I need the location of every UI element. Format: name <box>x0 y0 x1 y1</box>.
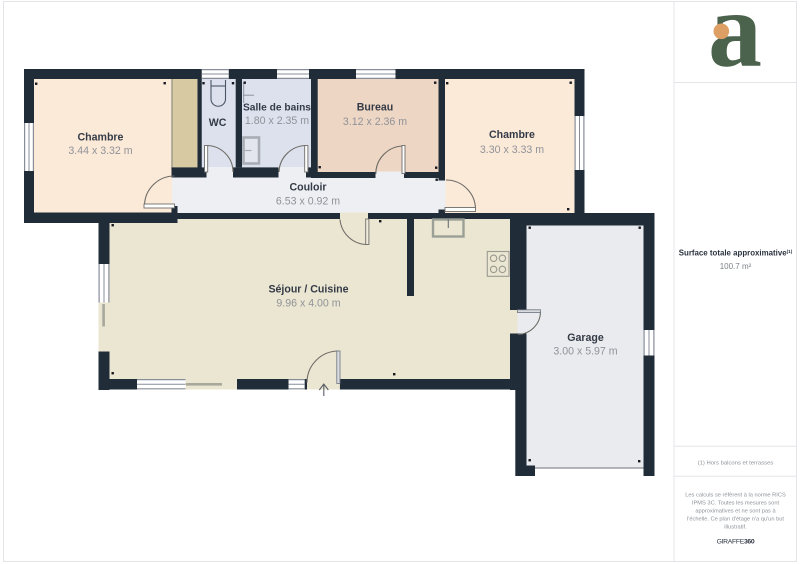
svg-text:9.96 x 4.00 m: 9.96 x 4.00 m <box>276 298 340 310</box>
svg-text:Couloir: Couloir <box>289 181 326 193</box>
svg-text:1.80 x 2.35 m: 1.80 x 2.35 m <box>245 115 309 127</box>
svg-text:100.7 m²: 100.7 m² <box>720 262 752 271</box>
svg-text:IPMS 3C. Toutes les mesures so: IPMS 3C. Toutes les mesures sont <box>692 501 780 507</box>
svg-text:Séjour / Cuisine: Séjour / Cuisine <box>268 283 348 295</box>
svg-text:l'échelle. Ce plan d'étage n'a: l'échelle. Ce plan d'étage n'a qu'un but <box>687 517 784 523</box>
svg-text:Surface totale approximative(1: Surface totale approximative(1) <box>679 249 793 258</box>
svg-text:3.00 x 5.97 m: 3.00 x 5.97 m <box>553 345 617 357</box>
svg-text:3.12 x 2.36 m: 3.12 x 2.36 m <box>343 116 407 128</box>
svg-text:6.53 x 0.92 m: 6.53 x 0.92 m <box>276 195 340 207</box>
svg-text:WC: WC <box>209 117 227 129</box>
svg-text:a: a <box>708 0 762 90</box>
svg-text:Bureau: Bureau <box>357 101 394 113</box>
svg-text:3.30 x 3.33 m: 3.30 x 3.33 m <box>480 144 544 156</box>
svg-text:Les calculs se réfèrent à la n: Les calculs se réfèrent à la norme RICS <box>685 493 786 499</box>
svg-text:Garage: Garage <box>567 332 604 344</box>
svg-text:Chambre: Chambre <box>78 131 124 143</box>
svg-text:illustratif.: illustratif. <box>724 525 747 531</box>
svg-text:approximatives et ne sont pas: approximatives et ne sont pas à <box>695 509 776 515</box>
svg-text:GIRAFFE360: GIRAFFE360 <box>717 539 755 546</box>
svg-text:Salle de bains: Salle de bains <box>243 102 311 113</box>
svg-text:3.44 x 3.32 m: 3.44 x 3.32 m <box>68 145 132 157</box>
svg-text:Chambre: Chambre <box>489 129 535 141</box>
svg-text:(1) Hors balcons et terrasses: (1) Hors balcons et terrasses <box>698 461 774 467</box>
